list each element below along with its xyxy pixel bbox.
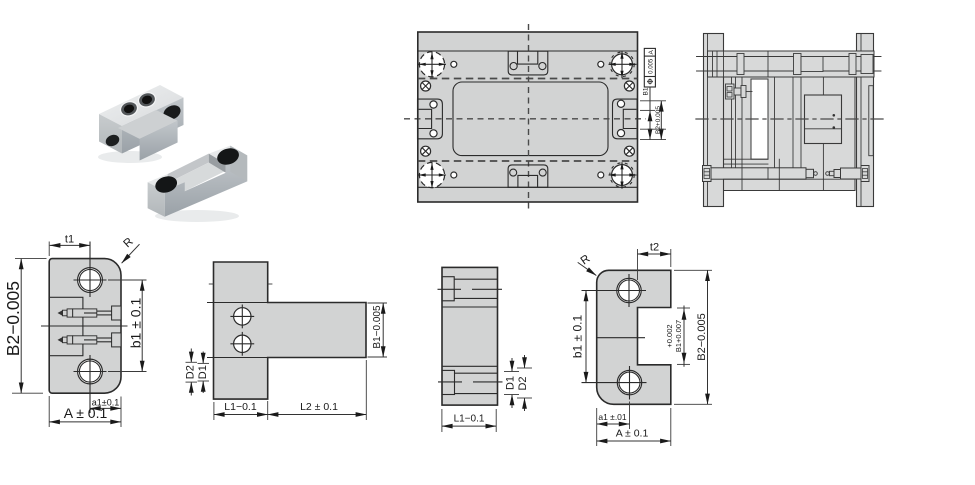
svg-text:B1: B1 [643, 87, 650, 95]
svg-text:A ± 0.1: A ± 0.1 [616, 428, 649, 440]
svg-text:L1−0.1: L1−0.1 [224, 401, 257, 413]
svg-text:D1: D1 [197, 365, 209, 379]
svg-text:D2: D2 [517, 376, 529, 390]
svg-text:+0.002: +0.002 [665, 324, 674, 347]
svg-text:B1−0.005: B1−0.005 [372, 305, 383, 349]
svg-text:b1 ± 0.1: b1 ± 0.1 [571, 315, 585, 359]
svg-text:B2−0.005: B2−0.005 [696, 313, 708, 360]
svg-text:A: A [648, 49, 655, 54]
svg-text:b1 ± 0.1: b1 ± 0.1 [128, 298, 144, 349]
svg-text:A ± 0.1: A ± 0.1 [64, 405, 108, 421]
svg-text:L2 ± 0.1: L2 ± 0.1 [300, 401, 338, 413]
svg-text:L1−0.1: L1−0.1 [454, 414, 485, 425]
svg-text:B2−0.005: B2−0.005 [3, 281, 23, 356]
svg-text:D2: D2 [185, 365, 197, 379]
svg-text:0.005: 0.005 [649, 58, 655, 74]
svg-text:B2+0.005: B2+0.005 [655, 106, 662, 134]
svg-text:B1+0.007: B1+0.007 [674, 320, 683, 352]
svg-text:a1 ±.01: a1 ±.01 [598, 412, 627, 422]
svg-text:D1: D1 [505, 376, 517, 390]
svg-text:t2: t2 [650, 242, 659, 254]
svg-text:t1: t1 [65, 234, 74, 246]
